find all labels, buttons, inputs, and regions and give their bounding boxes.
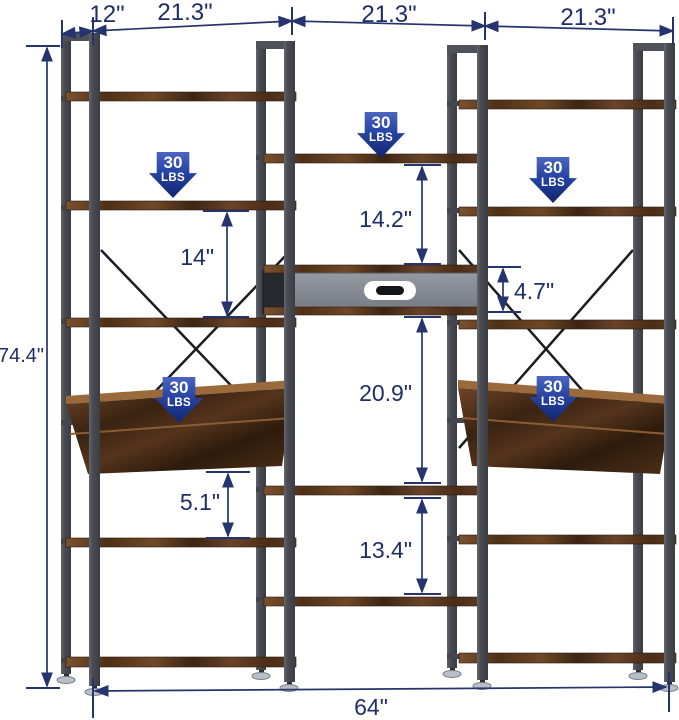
- dim-label-mid-bottom-gap: 13.4": [359, 537, 412, 563]
- dim-label-depth: 12": [89, 1, 124, 28]
- dim-label-total-height: 74.4": [0, 345, 44, 367]
- load-badge-unit: LBS: [541, 177, 565, 190]
- drawer-handle-slot: [376, 286, 404, 295]
- dim-label-left-under-tilt: 5.1": [180, 489, 220, 515]
- bookshelf-dimension-diagram: 12" 21.3" 21.3" 21.3" 74.4" 64" 14" 5.1"…: [0, 0, 679, 720]
- load-badge-value: 30: [544, 158, 563, 177]
- dim-label-width-right: 21.3": [560, 4, 615, 31]
- dim-label-total-width: 64": [354, 694, 388, 720]
- load-badge-unit: LBS: [541, 396, 565, 409]
- dim-label-left-shelf-gap: 14": [180, 244, 214, 270]
- furniture-illustration: 12" 21.3" 21.3" 21.3" 74.4" 64" 14" 5.1"…: [0, 0, 679, 720]
- load-badge-value: 30: [164, 153, 183, 172]
- load-badge-unit: LBS: [167, 397, 191, 410]
- load-badge-value: 30: [170, 378, 189, 397]
- dim-label-mid-top-gap: 14.2": [359, 206, 412, 232]
- dim-label-mid-lower-gap: 20.9": [359, 380, 412, 406]
- dim-label-drawer-height: 4.7": [514, 278, 554, 304]
- load-badge-unit: LBS: [369, 132, 393, 145]
- dim-label-width-left: 21.3": [157, 0, 212, 26]
- dim-label-width-middle: 21.3": [361, 1, 416, 28]
- load-badge-value: 30: [372, 113, 391, 132]
- load-badge-value: 30: [544, 377, 563, 396]
- load-badge-unit: LBS: [161, 172, 185, 185]
